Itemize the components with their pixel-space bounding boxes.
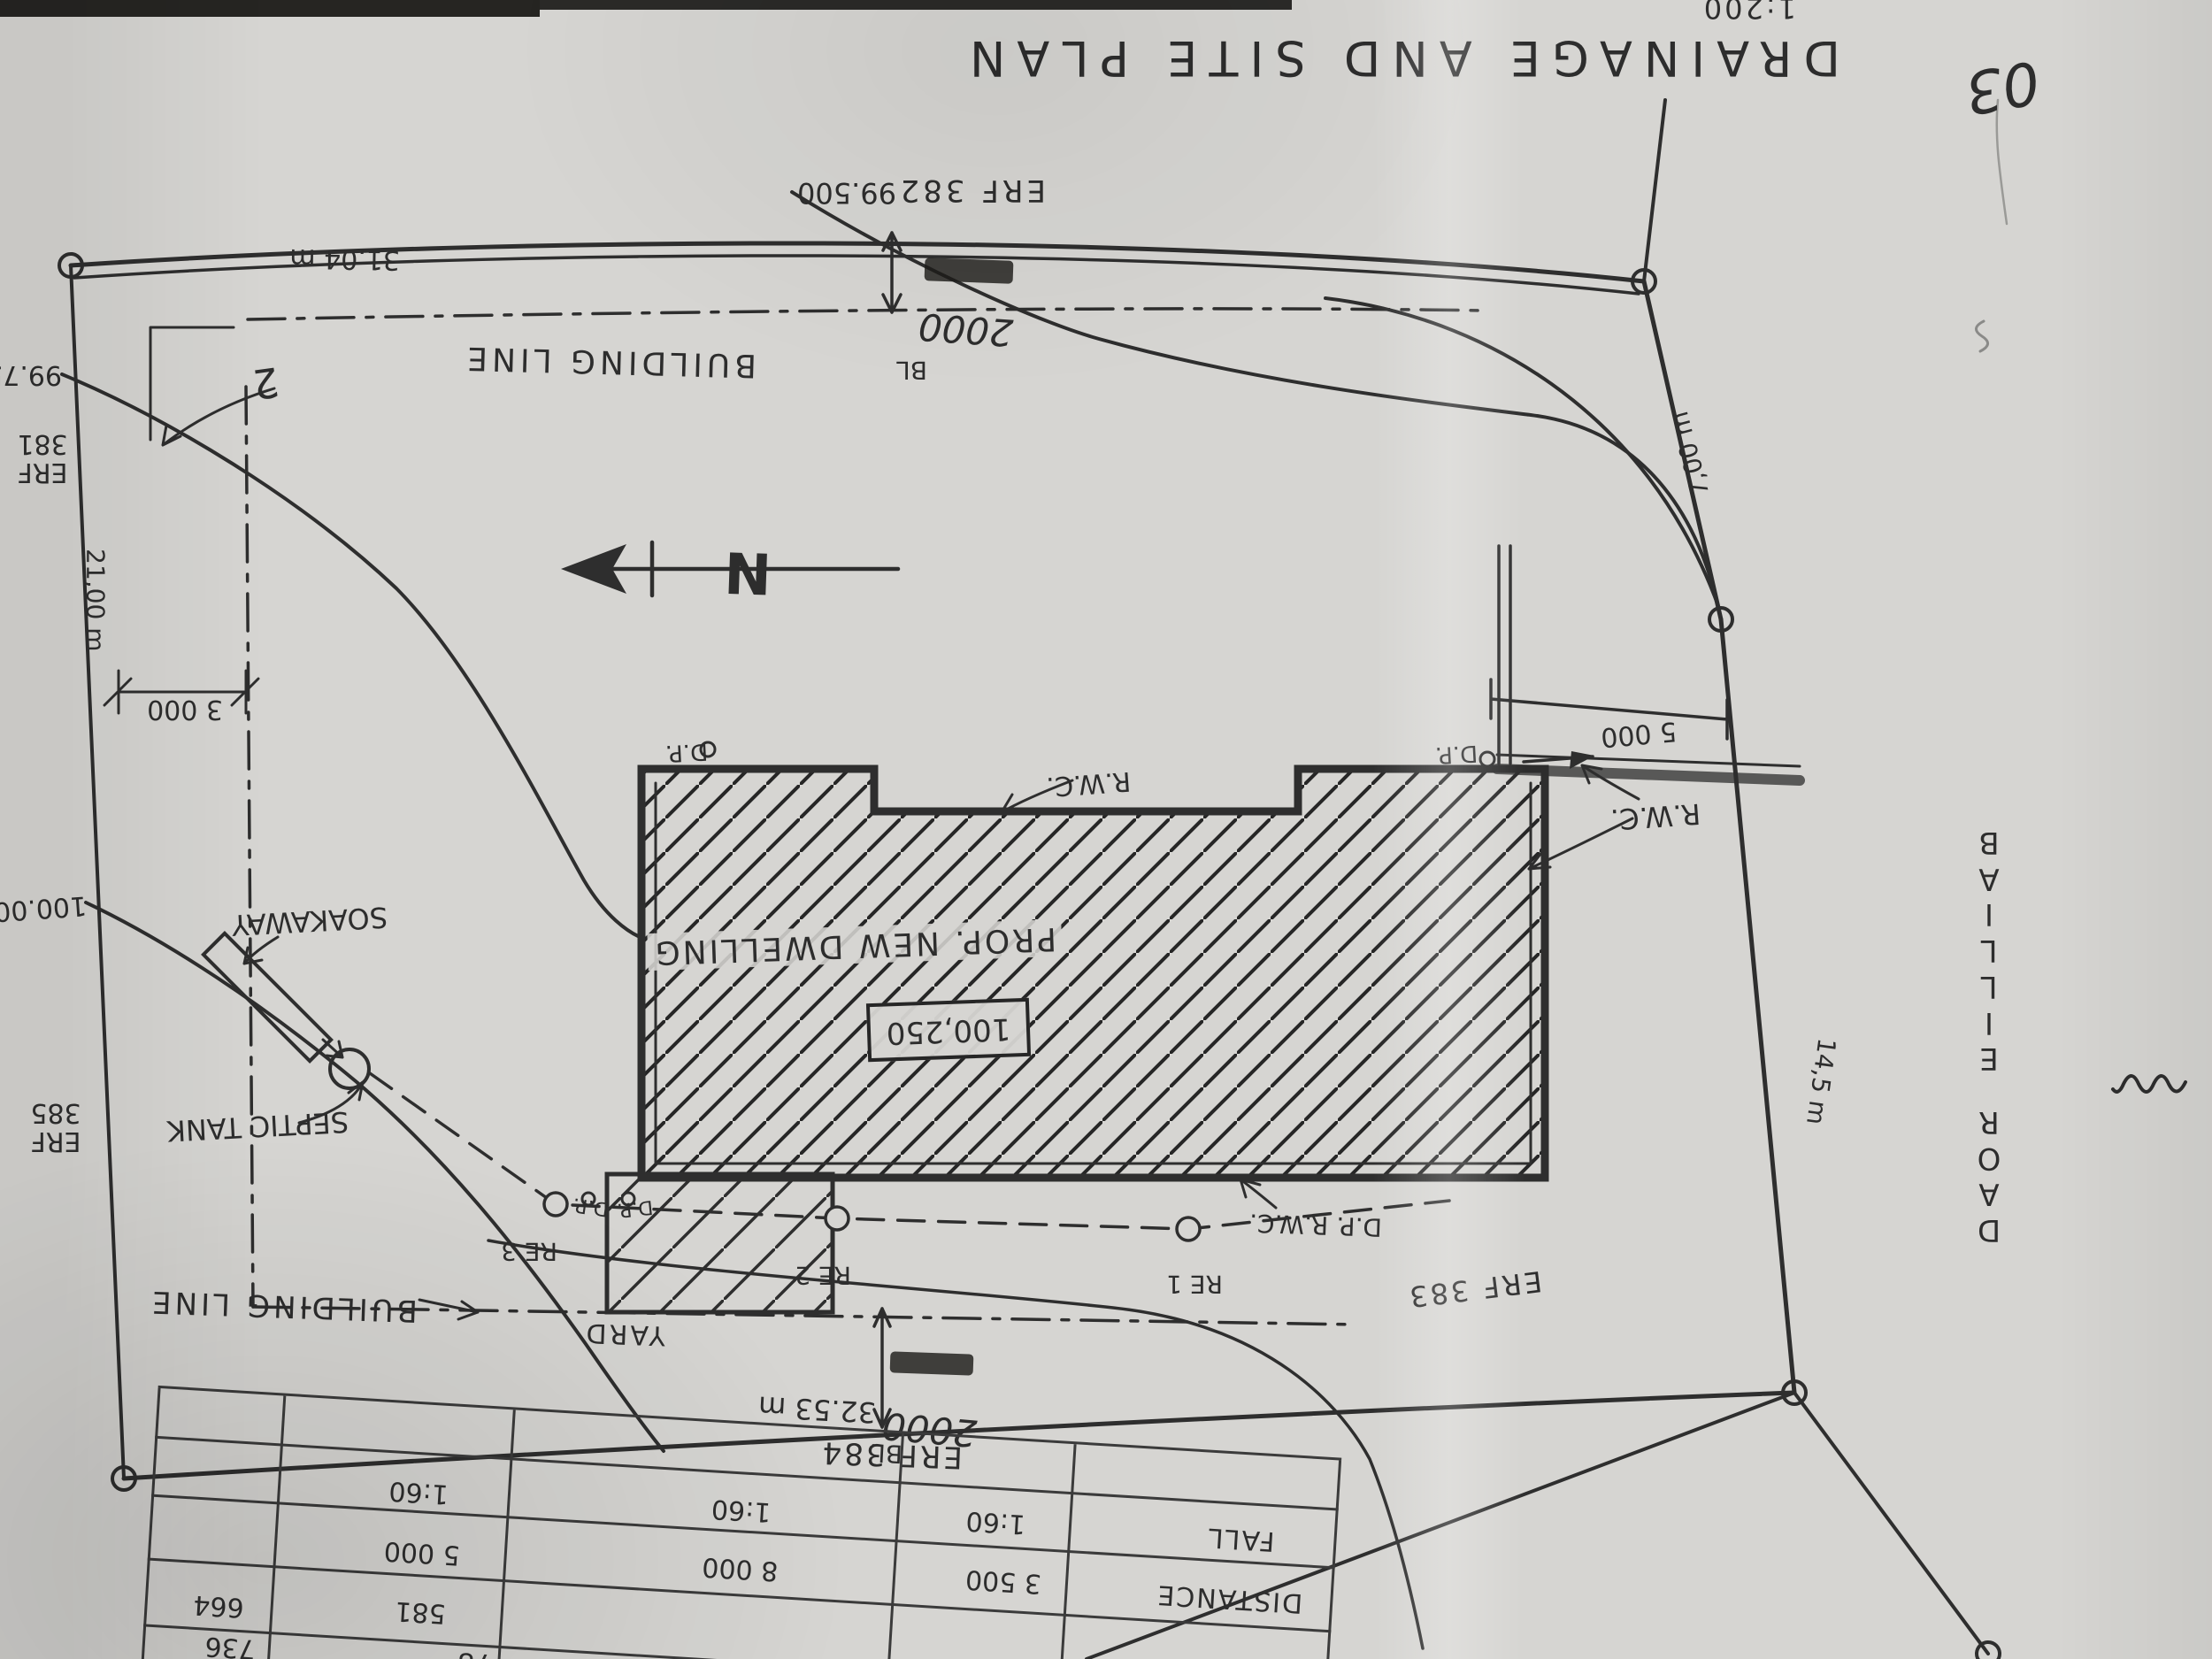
rodding-eye-2-label: RE 2 (795, 1263, 851, 1288)
soakaway-outlet (323, 1040, 342, 1057)
dim-garage-side-label: 5 000 (1600, 717, 1678, 751)
erf-382-label: ERF 382 (897, 173, 1046, 205)
table-level-value: 664 (193, 1590, 245, 1621)
dim-side-building-line-label: 3 000 (147, 695, 223, 724)
rodding-eye-marker (1177, 1217, 1200, 1240)
dim-top-boundary-label: 31.04 m (289, 243, 400, 273)
scanned-site-plan-photo: DRAINAGE AND SITE PLAN 1:200 03 ERF 382 … (0, 0, 2212, 1659)
rodding-eye-1-label: RE 1 (1166, 1271, 1223, 1297)
soakaway-rect (204, 933, 331, 1061)
crossed-out-dimension (925, 257, 1014, 283)
driveway-edge (1499, 546, 1510, 764)
table-grid-line (883, 1433, 904, 1659)
erf-381-label: ERF 381 (4, 430, 81, 486)
table-row-label-distance: DISTANCE (1156, 1580, 1303, 1617)
rodding-eye-marker (826, 1207, 849, 1230)
handwritten-2000-top: 2000 (918, 306, 1015, 351)
dim-left-boundary-label: 21,00 m (82, 529, 108, 671)
table-row-label-fall: FALL (1206, 1523, 1275, 1555)
table-level-value: 78 (457, 1647, 492, 1659)
rwc-label: R.W.C. (1609, 798, 1701, 834)
downpipe-label: D.P. (572, 1194, 611, 1219)
sheet-title: DRAINAGE AND SITE PLAN (958, 32, 1840, 82)
table-distance-value: 8 000 (702, 1552, 780, 1585)
table-distance-value: 3 500 (964, 1564, 1042, 1597)
drawing-sheet: DRAINAGE AND SITE PLAN 1:200 03 ERF 382 … (0, 0, 2212, 1659)
bl-abbrev-top: BL (896, 357, 927, 383)
building-line-bottom-label: BUILDING LINE (149, 1285, 419, 1325)
building-line-top-label: BUILDING LINE (463, 341, 757, 381)
table-level-value: 581 (395, 1596, 447, 1627)
downpipe-label: D.P. (1434, 740, 1479, 766)
table-grid-line (265, 1396, 286, 1659)
road-boundary-line (1721, 619, 1794, 1393)
yard-label: YARD (583, 1318, 666, 1349)
downpipe-label: D.P. (616, 1196, 654, 1220)
side-building-line (246, 387, 253, 1307)
table-fall-value: 1:60 (965, 1506, 1026, 1538)
handwritten-scribble (2113, 1076, 2185, 1092)
contour-10000 (86, 902, 664, 1451)
rodding-eye-3-label: RE 3 (501, 1239, 557, 1264)
level-10000-label: 100.00 (0, 891, 88, 926)
level-99750-label: 99.750 (0, 361, 62, 389)
road-corner-extension (1794, 1393, 1988, 1654)
soakaway-label: SOAKAWAY (231, 902, 388, 940)
road-edge-extension (1644, 100, 1665, 281)
dp-rwc-leader (1240, 1179, 1276, 1208)
crossed-out-dimension (890, 1351, 974, 1375)
photo-edge-strip (0, 0, 540, 17)
road-name-label: BAILLIEROAD (1962, 826, 2016, 1245)
table-level-value: 736 (204, 1632, 257, 1659)
rodding-eye-marker (544, 1193, 567, 1216)
sheet-scale: 1:200 (1701, 0, 1796, 22)
yard-outline (607, 1174, 833, 1312)
dp-rwc-label: D.P. R.W.C. (1249, 1210, 1383, 1240)
table-fall-value: 1:60 (388, 1477, 449, 1509)
contour-99750 (62, 374, 640, 937)
front-building-line (248, 309, 1486, 319)
table-fall-value: 1:60 (710, 1494, 772, 1526)
north-label: N (723, 541, 772, 602)
survey-peg (1977, 1642, 2000, 1659)
handwritten-page-number: 03 (1961, 50, 2045, 124)
level-99500-label: 99.500 (797, 177, 896, 207)
downpipe-label: D.P. (664, 738, 709, 764)
dwelling-outline (641, 769, 1545, 1178)
table-distance-value: 5 000 (383, 1536, 461, 1569)
table-grid-line (495, 1409, 516, 1659)
floor-level-box: 100,250 (866, 998, 1031, 1062)
downpipe-marker (1480, 752, 1494, 766)
erf-385-label: ERF 385 (17, 1099, 95, 1155)
rwc-label: R.W.C. (1045, 766, 1132, 800)
faint-mark (1976, 321, 1987, 351)
table-grid-line (143, 1624, 1327, 1659)
